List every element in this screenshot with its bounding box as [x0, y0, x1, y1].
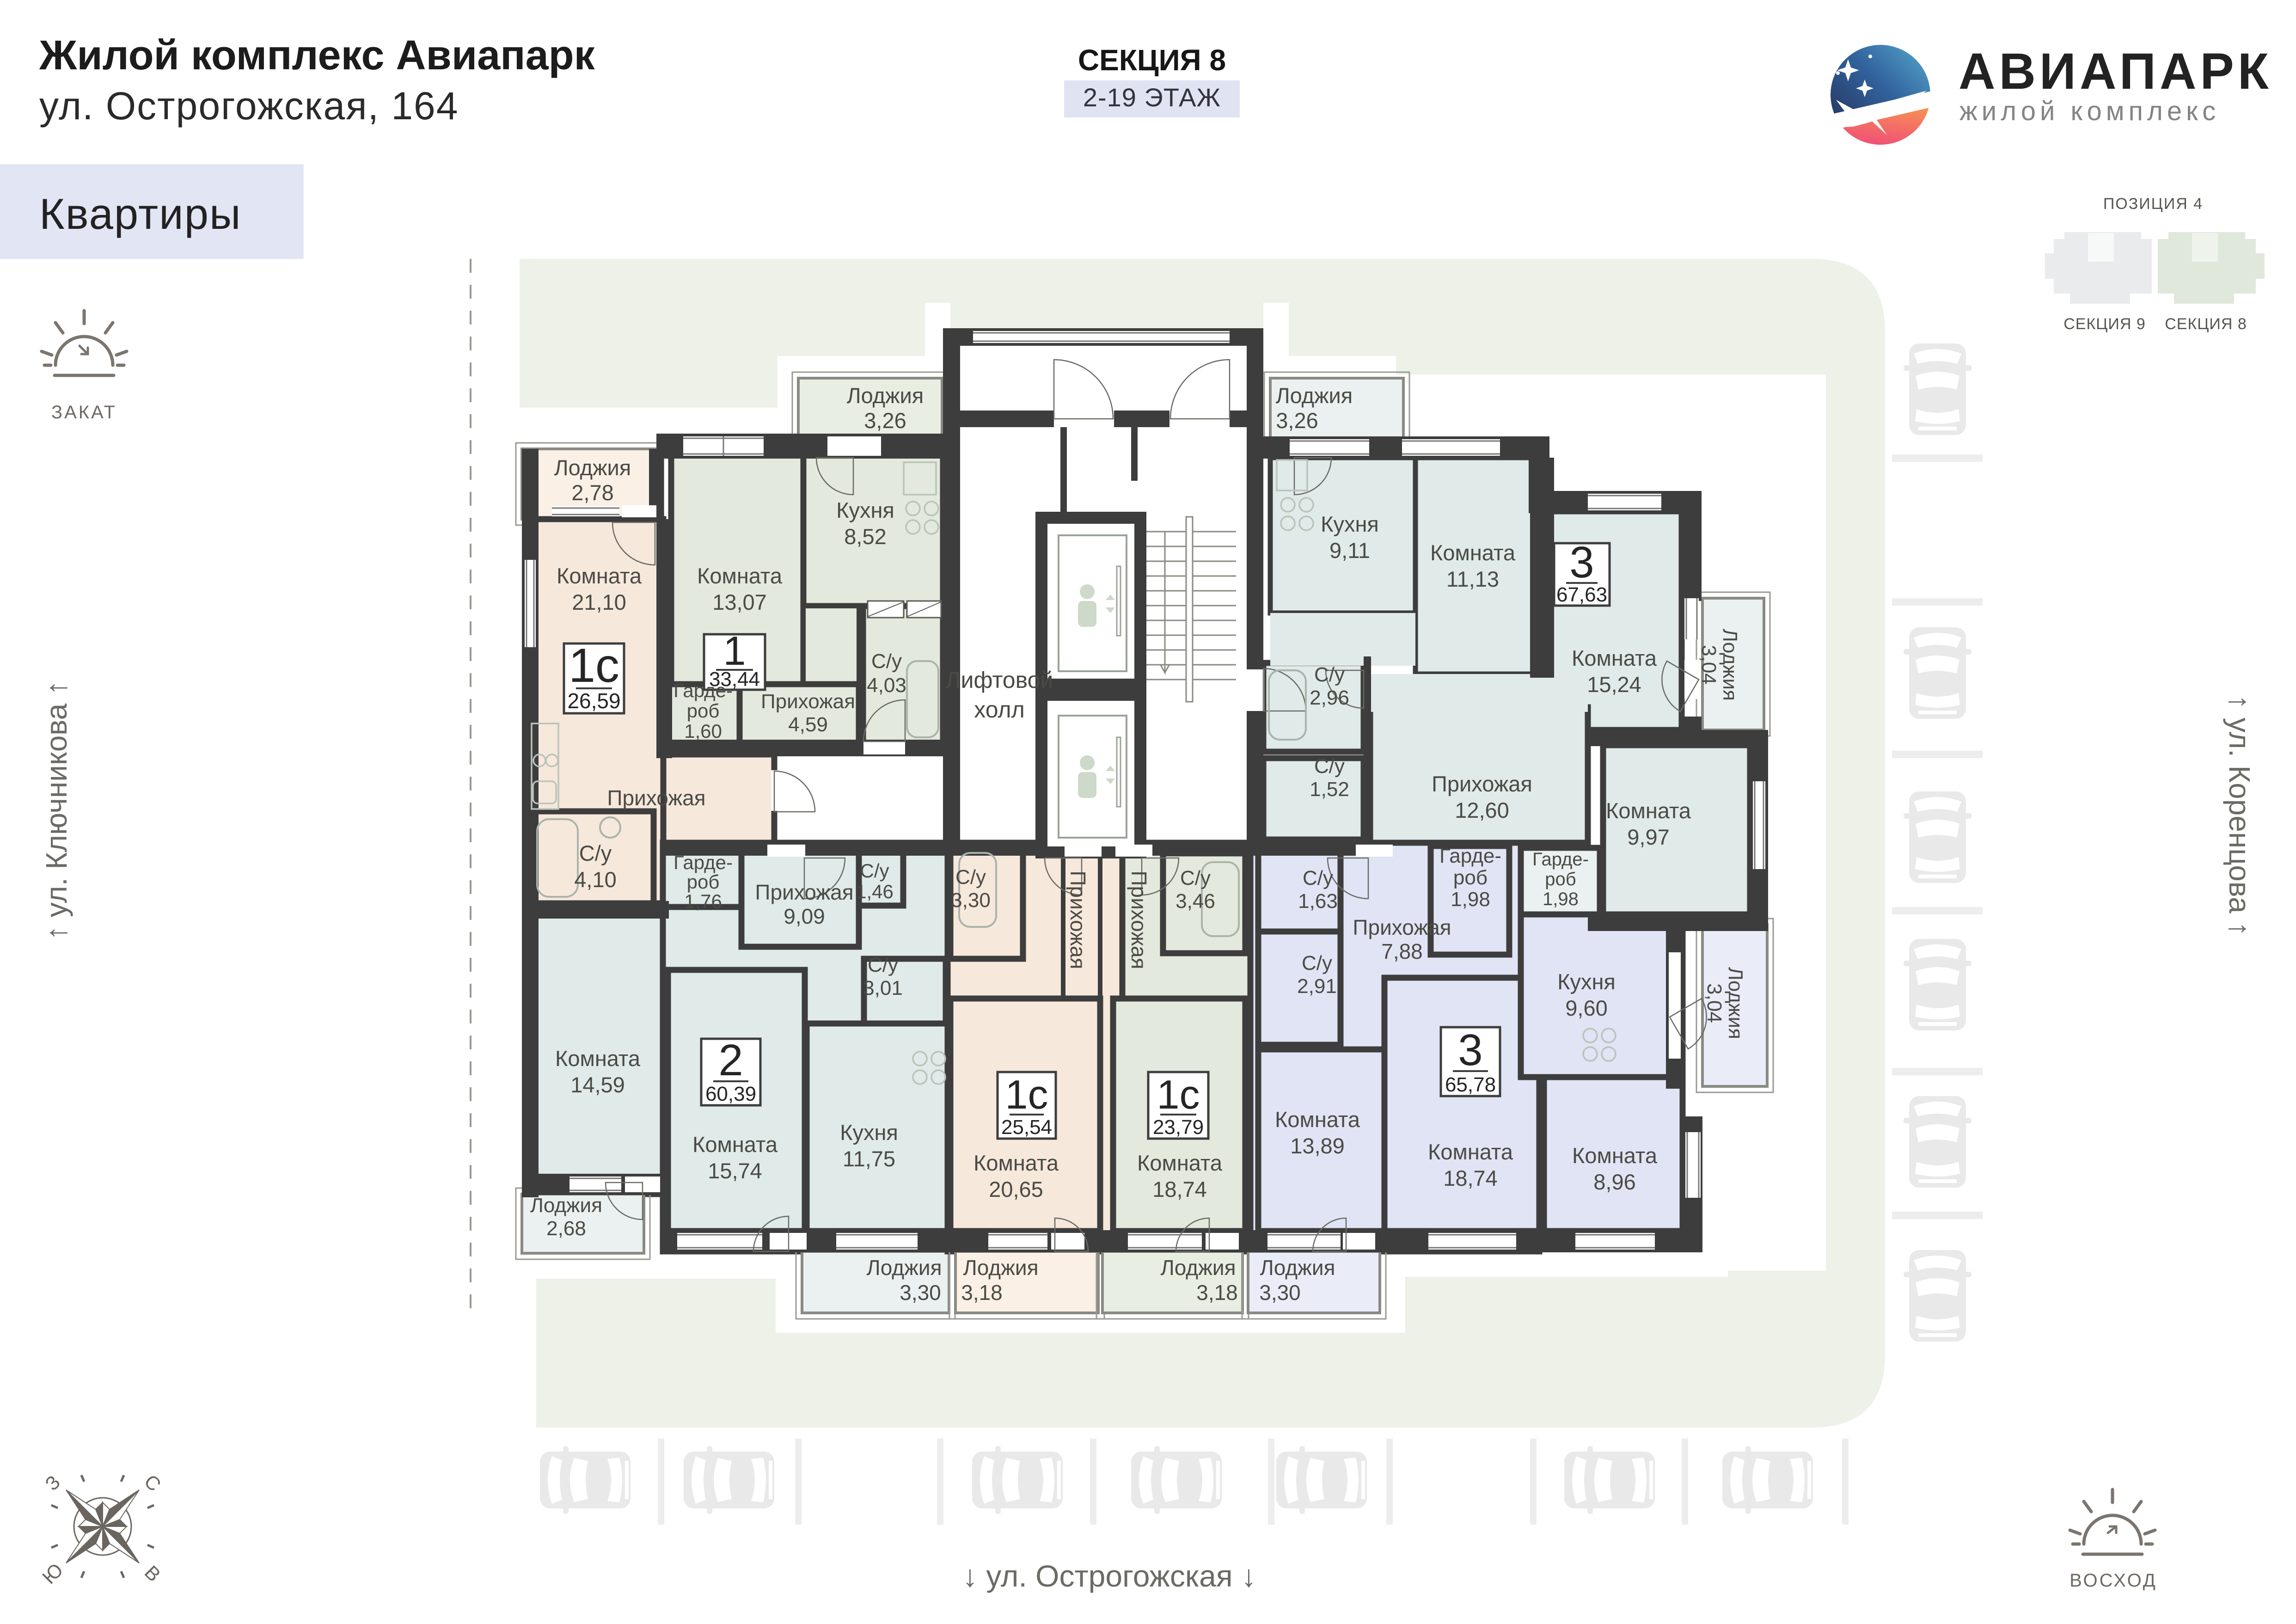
svg-text:23,79: 23,79: [1153, 1116, 1204, 1139]
svg-text:СЕКЦИЯ 9: СЕКЦИЯ 9: [2063, 315, 2146, 333]
svg-text:Лоджия: Лоджия: [1719, 629, 1741, 701]
svg-text:3,30: 3,30: [1259, 1281, 1301, 1305]
svg-text:Лоджия: Лоджия: [1276, 383, 1353, 408]
svg-text:65,78: 65,78: [1445, 1073, 1496, 1096]
svg-text:С/у1,52: С/у1,52: [1310, 755, 1349, 801]
svg-text:В: В: [141, 1561, 165, 1586]
svg-text:1: 1: [723, 628, 746, 674]
svg-text:3,04: 3,04: [1703, 983, 1726, 1023]
svg-text:жилой комплекс: жилой комплекс: [1959, 96, 2220, 126]
svg-text:3,30: 3,30: [900, 1281, 941, 1305]
svg-text:ул. Острогожская, 164: ул. Острогожская, 164: [39, 84, 459, 128]
svg-text:Прихожая: Прихожая: [1127, 870, 1151, 969]
svg-text:↑ ул. Ключникова ↑: ↑ ул. Ключникова ↑: [40, 680, 73, 940]
svg-text:СЕКЦИЯ 8: СЕКЦИЯ 8: [1078, 43, 1226, 77]
svg-text:Лоджия: Лоджия: [1260, 1256, 1335, 1280]
svg-text:3,26: 3,26: [1276, 408, 1318, 433]
svg-text:С/у2,96: С/у2,96: [1310, 663, 1349, 709]
svg-text:↑ ул. Коренцова ↑: ↑ ул. Коренцова ↑: [2223, 695, 2256, 937]
svg-text:3,04: 3,04: [1697, 645, 1720, 685]
svg-text:Лоджия: Лоджия: [1161, 1256, 1236, 1280]
svg-text:3: 3: [1569, 538, 1594, 587]
svg-text:Жилой комплекс Авиапарк: Жилой комплекс Авиапарк: [39, 32, 595, 79]
svg-text:ЗАКАТ: ЗАКАТ: [51, 402, 117, 423]
svg-text:Прихожая: Прихожая: [1066, 870, 1090, 969]
svg-text:Ю: Ю: [38, 1559, 67, 1588]
svg-text:С/у3,30: С/у3,30: [951, 866, 991, 912]
svg-text:С: С: [140, 1470, 165, 1495]
svg-text:1с: 1с: [1157, 1072, 1200, 1117]
svg-text:СЕКЦИЯ 8: СЕКЦИЯ 8: [2165, 315, 2247, 333]
svg-text:2-19 ЭТАЖ: 2-19 ЭТАЖ: [1083, 83, 1221, 112]
svg-text:ПОЗИЦИЯ 4: ПОЗИЦИЯ 4: [2103, 195, 2203, 213]
svg-text:3,18: 3,18: [1196, 1281, 1238, 1305]
svg-text:67,63: 67,63: [1556, 583, 1607, 606]
svg-text:С/у2,91: С/у2,91: [1297, 952, 1337, 998]
svg-text:АВИАПАРК: АВИАПАРК: [1959, 43, 2272, 100]
svg-text:С/у1,63: С/у1,63: [1298, 867, 1338, 913]
svg-text:Прихожая: Прихожая: [607, 786, 705, 810]
svg-text:25,54: 25,54: [1001, 1116, 1052, 1139]
svg-text:↓ ул. Острогожская ↓: ↓ ул. Острогожская ↓: [962, 1559, 1256, 1593]
svg-text:ВОСХОД: ВОСХОД: [2069, 1570, 2157, 1591]
svg-text:С/у3,01: С/у3,01: [863, 954, 903, 999]
svg-text:Лоджия: Лоджия: [963, 1256, 1039, 1280]
svg-text:Лоджия: Лоджия: [867, 1256, 942, 1280]
svg-text:60,39: 60,39: [705, 1083, 756, 1105]
svg-text:С/у3,46: С/у3,46: [1176, 867, 1215, 913]
svg-text:3: 3: [1458, 1025, 1482, 1075]
svg-text:С/у1,46: С/у1,46: [856, 860, 894, 902]
svg-text:26,59: 26,59: [567, 689, 620, 713]
svg-text:1с: 1с: [1005, 1072, 1048, 1117]
svg-text:1с: 1с: [569, 639, 619, 692]
svg-text:3,18: 3,18: [961, 1281, 1003, 1305]
svg-text:2: 2: [718, 1036, 743, 1085]
svg-text:З: З: [41, 1471, 64, 1495]
svg-text:Квартиры: Квартиры: [39, 190, 242, 238]
svg-text:Лоджия: Лоджия: [1724, 967, 1747, 1039]
